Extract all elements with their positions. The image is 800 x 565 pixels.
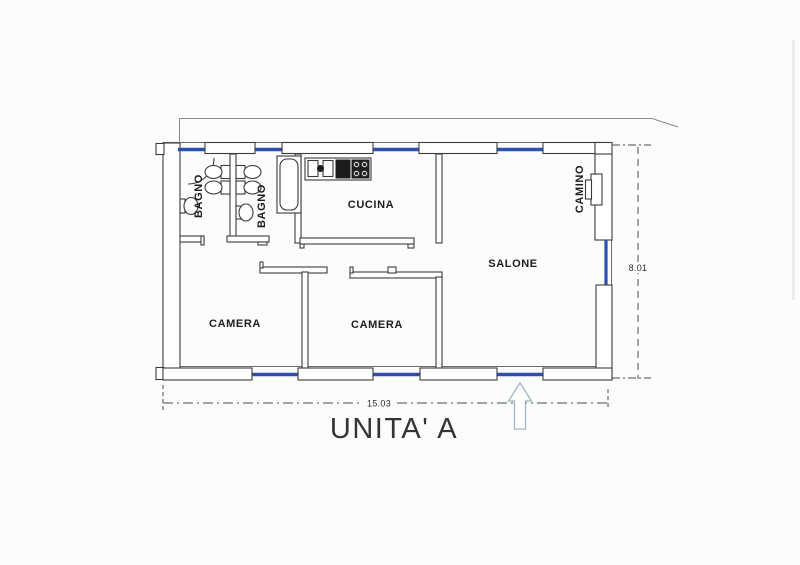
room-label-camera-2: CAMERA <box>351 319 403 331</box>
entrance-arrow-icon <box>509 383 532 429</box>
room-label-camera-1: CAMERA <box>209 318 261 330</box>
bathroom-2-fixtures <box>236 156 301 221</box>
scan-streak <box>792 40 795 300</box>
floor-plan-canvas: 8.01 15.03 BAGNO BAGNO CUCINA SALONE CAM… <box>0 0 800 565</box>
fireplace-icon <box>586 174 603 205</box>
bathroom-1-fixtures <box>180 158 230 215</box>
wall-end-cap <box>156 144 164 155</box>
room-label-camino: CAMINO <box>574 165 586 213</box>
room-label-cucina: CUCINA <box>348 199 394 211</box>
kitchen-fixtures <box>305 158 371 180</box>
toilet-icon <box>205 166 230 179</box>
bidet-icon <box>205 181 230 194</box>
stove-icon <box>305 158 371 180</box>
eaves-outline <box>180 119 679 144</box>
room-label-bagno-1: BAGNO <box>193 174 205 218</box>
room-label-bagno-2: BAGNO <box>256 184 268 228</box>
sink-icon <box>236 204 253 221</box>
toilet-icon <box>236 166 261 179</box>
room-label-salone: SALONE <box>488 258 537 270</box>
scanned-floor-plan-page: 8.01 15.03 BAGNO BAGNO CUCINA SALONE CAM… <box>0 0 800 565</box>
bathtub-icon <box>277 156 301 213</box>
dimension-label-width: 15.03 <box>367 399 391 409</box>
dimension-label-height: 8.01 <box>629 263 648 273</box>
unit-title: UNITA' A <box>330 413 458 445</box>
